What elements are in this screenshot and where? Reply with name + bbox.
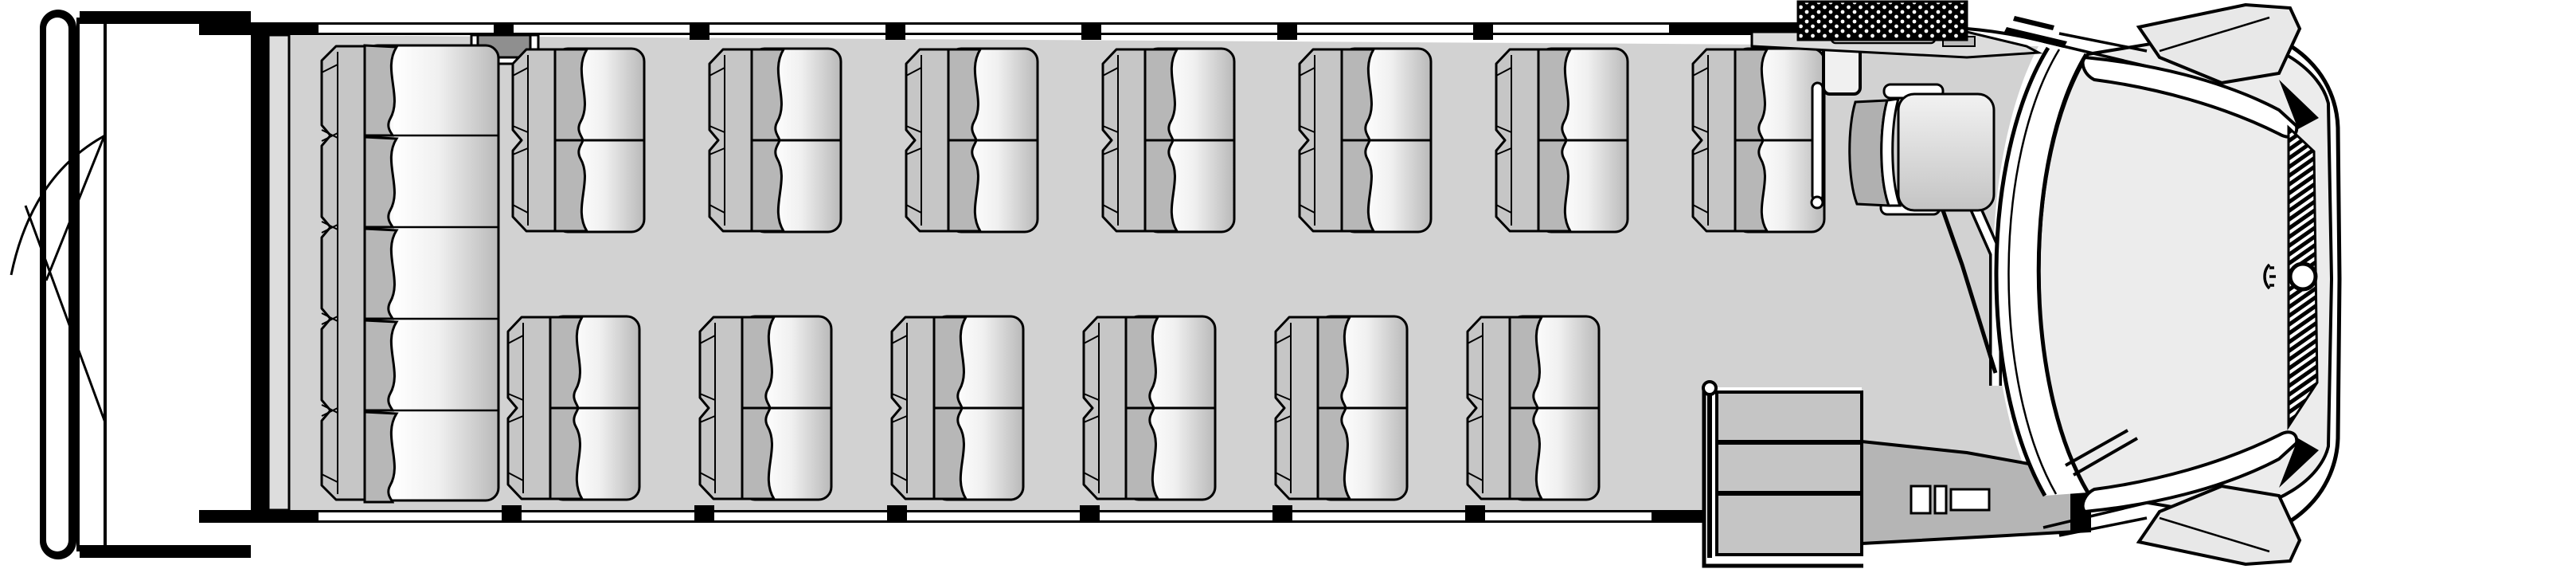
- driver-cushion: [1898, 94, 1994, 210]
- top-row-seat-pair-1: [513, 49, 644, 232]
- top-window-5: [1101, 25, 1277, 33]
- top-mullion-6: [1473, 35, 1493, 40]
- top-mullion-3: [885, 35, 905, 40]
- top-mullion-4: [1081, 35, 1101, 40]
- running-board-tread-plate: [1798, 2, 1967, 40]
- bottom-row-seat-pair-2: [700, 316, 831, 500]
- top-mullion-2: [690, 35, 709, 40]
- rear-wall-cavity: [268, 35, 289, 510]
- bottom-mullion-4: [1080, 505, 1100, 510]
- grille-emblem: [2290, 264, 2316, 289]
- bottom-window-7: [1485, 512, 1652, 520]
- top-mullion-5: [1277, 35, 1297, 40]
- top-row-seat-pair-6: [1496, 49, 1628, 232]
- top-window-7: [1493, 25, 1669, 33]
- stanchion-foot: [1812, 197, 1823, 208]
- top-row-seat-pair-2: [709, 49, 841, 232]
- rear-bumper-inner: [46, 18, 68, 551]
- rear-bench-seat-group: [322, 45, 498, 502]
- floor-plan-canvas: [0, 0, 2576, 569]
- stair-tread-1: [1717, 392, 1862, 441]
- top-row-seat-pair-3: [906, 49, 1038, 232]
- bottom-row-seat-pair-6: [1468, 316, 1599, 500]
- rear-assembly: [11, 10, 289, 559]
- bus-floor-plan: [0, 0, 2576, 569]
- top-window-6: [1297, 25, 1473, 33]
- top-row-seat-pair-5: [1300, 49, 1431, 232]
- top-row-seat-pair-4: [1103, 49, 1234, 232]
- handrail-post: [1703, 382, 1716, 394]
- rear-cap-top: [80, 11, 251, 24]
- rear-wall-outer: [251, 22, 268, 523]
- bottom-row-seat-pair-5: [1276, 316, 1407, 500]
- stair-tread-2: [1717, 443, 1862, 492]
- bottom-row-seat-pair-4: [1084, 316, 1215, 500]
- rear-door-panel: [78, 19, 105, 550]
- top-window-3: [709, 25, 885, 33]
- stair-treads: [1717, 392, 1862, 555]
- door-hardware-2: [1935, 486, 1946, 513]
- rear-cap-bottom: [80, 545, 251, 558]
- bottom-window-3: [714, 512, 887, 520]
- top-window-2: [514, 25, 690, 33]
- rear-bench: [322, 45, 498, 502]
- top-row-seat-pair-7: [1693, 49, 1824, 232]
- bottom-window-5: [1100, 512, 1272, 520]
- bottom-window-4: [907, 512, 1080, 520]
- bottom-mullion-6: [1465, 505, 1485, 510]
- stair-tread-3: [1717, 494, 1862, 555]
- bottom-mullion-3: [887, 505, 907, 510]
- bottom-window-6: [1292, 512, 1465, 520]
- top-window-4: [905, 25, 1081, 33]
- bottom-window-2: [522, 512, 694, 520]
- bottom-window-1: [319, 512, 502, 520]
- stanchion-pole: [1812, 83, 1823, 201]
- bottom-mullion-5: [1272, 505, 1292, 510]
- bottom-row-seat-pair-3: [892, 316, 1023, 500]
- bottom-mullion-2: [694, 505, 714, 510]
- door-hardware-3: [1951, 489, 1989, 510]
- bottom-row-seat-pair-1: [508, 316, 639, 500]
- top-window-1: [319, 25, 494, 33]
- door-hardware-1: [1911, 486, 1930, 513]
- bottom-mullion-1: [502, 505, 522, 510]
